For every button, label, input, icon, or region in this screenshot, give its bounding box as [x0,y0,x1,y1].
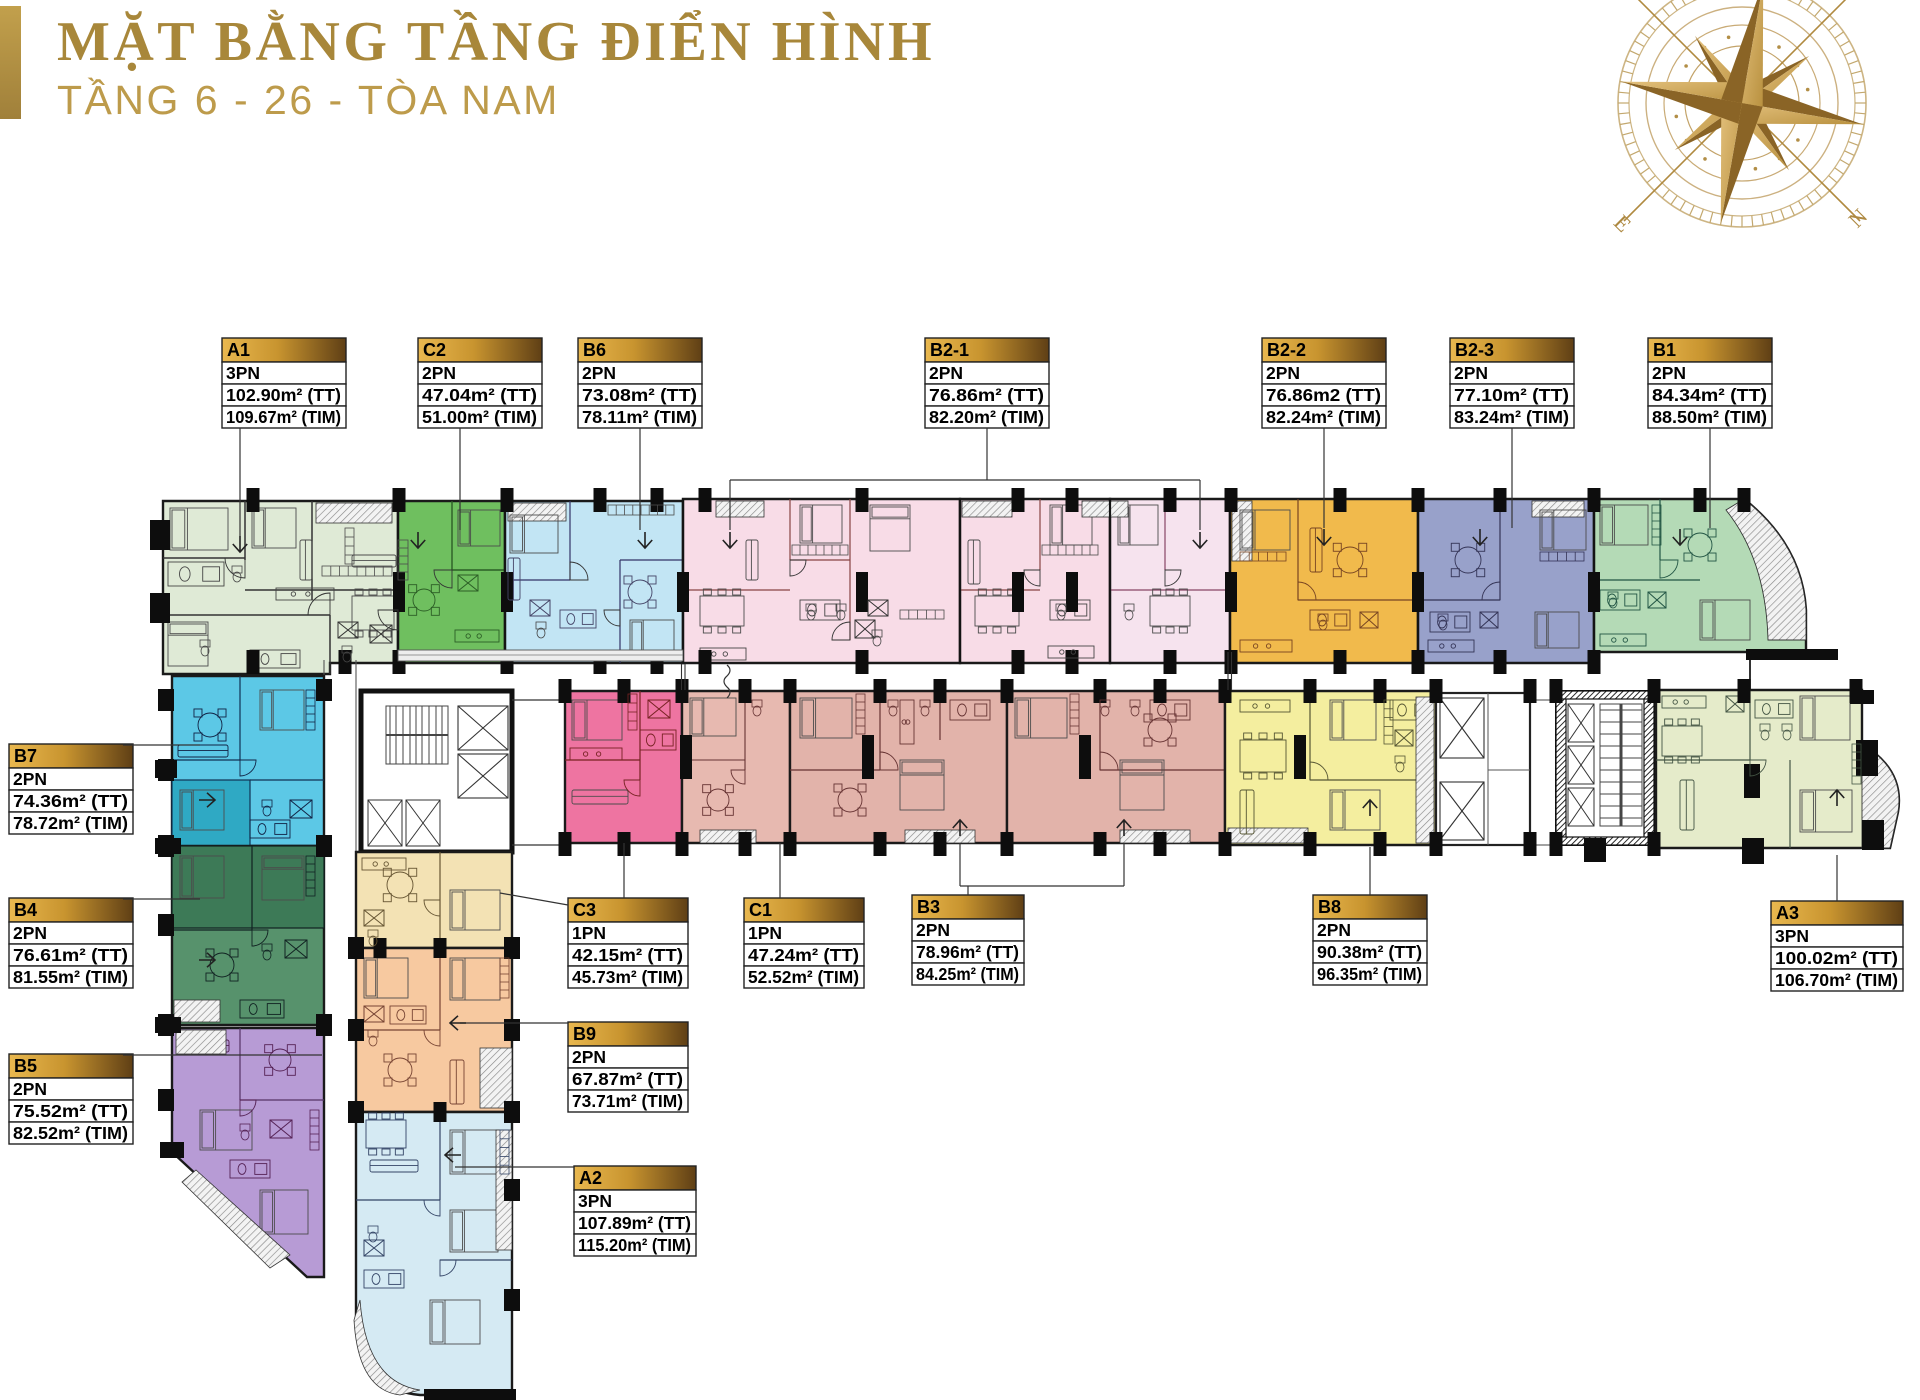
svg-text:2PN: 2PN [1266,363,1300,383]
svg-text:106.70m² (TIM): 106.70m² (TIM) [1775,970,1898,990]
svg-text:2PN: 2PN [1454,363,1488,383]
svg-text:2PN: 2PN [422,363,456,383]
svg-text:TẦNG 6 - 26 - TÒA NAM: TẦNG 6 - 26 - TÒA NAM [57,77,560,123]
svg-text:78.11m² (TIM): 78.11m² (TIM) [582,407,697,427]
svg-text:B9: B9 [573,1024,596,1044]
svg-text:76.86m² (TT): 76.86m² (TT) [929,385,1044,405]
svg-text:C1: C1 [749,900,772,920]
svg-text:82.52m² (TIM): 82.52m² (TIM) [13,1123,128,1143]
svg-text:1PN: 1PN [572,923,606,943]
svg-text:47.24m² (TT): 47.24m² (TT) [748,945,859,965]
svg-text:90.38m² (TT): 90.38m² (TT) [1317,942,1422,962]
svg-text:2PN: 2PN [929,363,963,383]
svg-text:2PN: 2PN [13,769,47,789]
svg-text:78.96m² (TT): 78.96m² (TT) [916,942,1019,962]
svg-text:B2-3: B2-3 [1455,340,1494,360]
svg-text:96.35m² (TIM): 96.35m² (TIM) [1317,964,1422,984]
svg-text:A3: A3 [1776,903,1799,923]
svg-text:51.00m² (TIM): 51.00m² (TIM) [422,407,537,427]
svg-text:76.61m² (TT): 76.61m² (TT) [13,945,128,965]
svg-text:115.20m² (TIM): 115.20m² (TIM) [578,1235,691,1255]
svg-text:B2-1: B2-1 [930,340,969,360]
svg-text:B5: B5 [14,1056,37,1076]
svg-text:2PN: 2PN [13,923,47,943]
svg-text:102.90m² (TT): 102.90m² (TT) [226,385,341,405]
svg-text:67.87m² (TT): 67.87m² (TT) [572,1069,683,1089]
svg-text:2PN: 2PN [1652,363,1686,383]
svg-text:73.71m² (TIM): 73.71m² (TIM) [572,1091,683,1111]
svg-text:2PN: 2PN [13,1079,47,1099]
svg-text:82.20m² (TIM): 82.20m² (TIM) [929,407,1044,427]
svg-text:B3: B3 [917,897,940,917]
svg-text:88.50m² (TIM): 88.50m² (TIM) [1652,407,1767,427]
svg-text:83.24m² (TIM): 83.24m² (TIM) [1454,407,1569,427]
svg-text:74.36m² (TT): 74.36m² (TT) [13,791,128,811]
svg-text:73.08m² (TT): 73.08m² (TT) [582,385,697,405]
svg-text:B8: B8 [1318,897,1341,917]
svg-text:52.52m² (TIM): 52.52m² (TIM) [748,967,859,987]
svg-text:107.89m² (TT): 107.89m² (TT) [578,1213,691,1233]
svg-text:A1: A1 [227,340,250,360]
svg-text:A2: A2 [579,1168,602,1188]
svg-text:77.10m² (TT): 77.10m² (TT) [1454,385,1569,405]
svg-text:82.24m² (TIM): 82.24m² (TIM) [1266,407,1381,427]
svg-text:B2-2: B2-2 [1267,340,1306,360]
svg-text:42.15m² (TT): 42.15m² (TT) [572,945,683,965]
svg-text:2PN: 2PN [572,1047,606,1067]
svg-text:3PN: 3PN [1775,926,1809,946]
svg-text:45.73m² (TIM): 45.73m² (TIM) [572,967,683,987]
svg-text:2PN: 2PN [1317,920,1351,940]
svg-text:MẶT BẰNG TẦNG ĐIỂN HÌNH: MẶT BẰNG TẦNG ĐIỂN HÌNH [57,9,935,73]
svg-text:100.02m² (TT): 100.02m² (TT) [1775,948,1898,968]
svg-text:1PN: 1PN [748,923,782,943]
svg-text:47.04m² (TT): 47.04m² (TT) [422,385,537,405]
svg-text:B4: B4 [14,900,37,920]
svg-text:B6: B6 [583,340,606,360]
svg-text:C3: C3 [573,900,596,920]
svg-text:2PN: 2PN [916,920,950,940]
svg-text:75.52m² (TT): 75.52m² (TT) [13,1101,128,1121]
svg-text:84.34m² (TT): 84.34m² (TT) [1652,385,1767,405]
svg-text:84.25m² (TIM): 84.25m² (TIM) [916,964,1019,984]
svg-text:3PN: 3PN [226,363,260,383]
svg-text:B7: B7 [14,746,37,766]
svg-text:B1: B1 [1653,340,1676,360]
svg-text:81.55m² (TIM): 81.55m² (TIM) [13,967,128,987]
svg-text:78.72m² (TIM): 78.72m² (TIM) [13,813,128,833]
svg-text:109.67m² (TIM): 109.67m² (TIM) [226,407,341,427]
svg-text:2PN: 2PN [582,363,616,383]
svg-text:C2: C2 [423,340,446,360]
svg-text:76.86m2 (TT): 76.86m2 (TT) [1266,385,1381,405]
svg-text:3PN: 3PN [578,1191,612,1211]
